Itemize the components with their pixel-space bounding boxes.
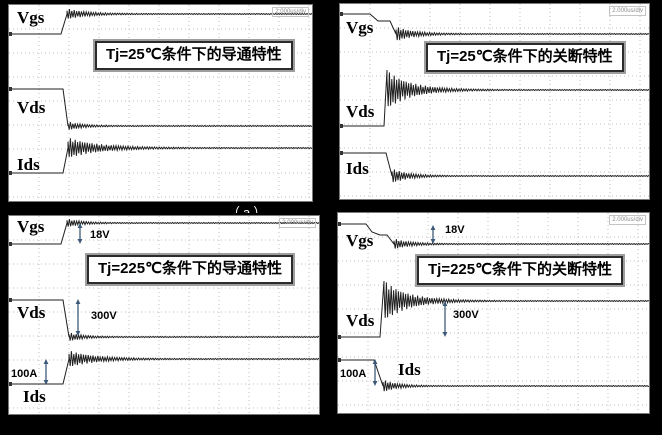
trace-vgs <box>338 224 649 249</box>
caption-box: Tj=225℃条件下的关断特性 <box>417 256 623 285</box>
trace-vds <box>9 89 312 130</box>
arrowhead-up <box>76 299 81 304</box>
trace-label-ids: Ids <box>17 155 40 174</box>
trace-vgs <box>9 219 319 244</box>
timebase-readout: 2.000us/div <box>609 215 646 225</box>
trace-label-vgs: Vgs <box>17 217 45 236</box>
trace-label-ids: Ids <box>346 159 369 178</box>
channel-marker <box>338 335 341 339</box>
trace-label-vds: Vds <box>346 311 375 330</box>
trace-vgs <box>340 14 649 40</box>
channel-marker <box>338 358 341 362</box>
trace-vds <box>340 70 649 126</box>
scope-panel-turnoff-225c: VgsVdsIds18V300V100A Tj=225℃条件下的关断特性 2.0… <box>337 212 650 414</box>
trace-label-vgs: Vgs <box>346 231 374 250</box>
waveform-plot-turnon-225c: VgsVdsIds18V300V100A <box>9 216 319 414</box>
channel-marker <box>340 12 343 16</box>
channel-marker <box>9 32 12 36</box>
scope-panel-turnoff-25c: VgsVdsIds Tj=25℃条件下的关断特性 2.000us/div <box>339 3 650 200</box>
trace-label-vds: Vds <box>17 98 46 117</box>
arrowhead-down <box>78 239 83 244</box>
figure-canvas: { "page": { "background": "#000000" }, "… <box>0 0 662 435</box>
trace-label-vds: Vds <box>17 303 46 322</box>
waveform-plot-turnoff-25c: VgsVdsIds <box>340 4 649 199</box>
caption-box: Tj=25℃条件下的关断特性 <box>426 43 624 72</box>
trace-ids <box>338 360 649 391</box>
channel-marker <box>338 222 341 226</box>
channel-marker <box>340 124 343 128</box>
trace-label-vgs: Vgs <box>346 18 374 37</box>
arrowhead-down <box>373 381 378 386</box>
caption-box: Tj=225℃条件下的导通特性 <box>87 255 293 284</box>
channel-marker <box>9 87 12 91</box>
trace-label-ids: Ids <box>398 360 421 379</box>
scope-panel-turnon-225c: VgsVdsIds18V300V100A Tj=225℃条件下的导通特性 2.0… <box>8 215 320 415</box>
channel-marker <box>9 382 12 386</box>
trace-vgs <box>9 9 312 34</box>
trace-ids <box>9 351 319 384</box>
channel-marker <box>9 298 12 302</box>
annotation-value: 18V <box>90 229 110 241</box>
waveform-plot-turnoff-225c: VgsVdsIds18V300V100A <box>338 213 649 413</box>
arrowhead-up <box>431 225 436 230</box>
annotation-value: 100A <box>340 368 366 380</box>
timebase-readout: 2.000us/div <box>272 7 309 17</box>
trace-ids <box>9 138 312 173</box>
trace-label-vds: Vds <box>346 102 375 121</box>
trace-label-ids: Ids <box>23 387 46 406</box>
trace-vds <box>9 300 319 341</box>
channel-marker <box>340 151 343 155</box>
annotation-value: 18V <box>445 224 465 236</box>
timebase-readout: 2.000us/div <box>609 6 646 16</box>
annotation-value: 100A <box>11 368 37 380</box>
channel-marker <box>9 242 12 246</box>
caption-box: Tj=25℃条件下的导通特性 <box>95 41 293 70</box>
arrowhead-up <box>44 359 49 364</box>
trace-label-vgs: Vgs <box>17 8 45 27</box>
annotation-value: 300V <box>91 310 117 322</box>
annotation-value: 300V <box>453 309 479 321</box>
cropped-text-fragment: （a） <box>227 202 269 213</box>
timebase-readout: 2.000us/div <box>279 218 316 228</box>
waveform-plot-turnon-25c: VgsVdsIds <box>9 5 312 201</box>
trace-ids <box>340 153 649 182</box>
channel-marker <box>9 171 12 175</box>
scope-panel-turnon-25c: VgsVdsIds Tj=25℃条件下的导通特性 2.000us/div <box>8 4 313 202</box>
arrowhead-down <box>443 332 448 337</box>
